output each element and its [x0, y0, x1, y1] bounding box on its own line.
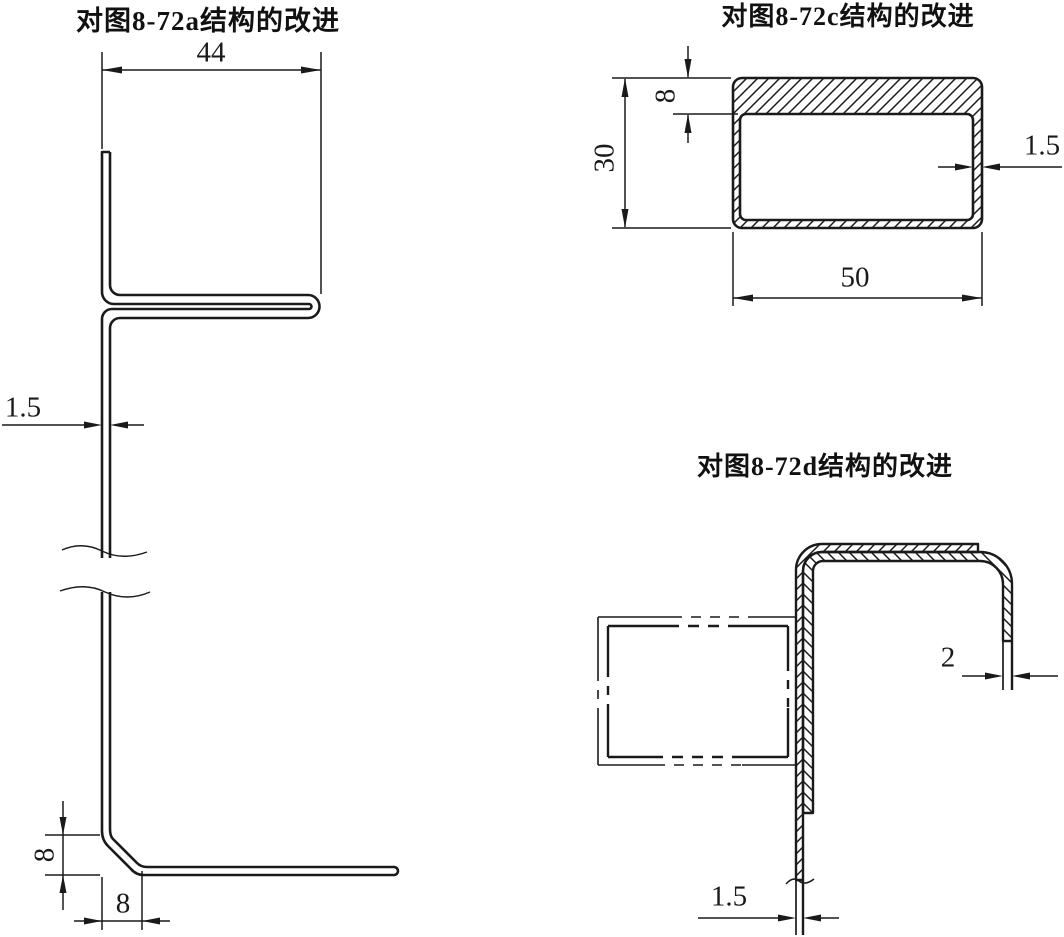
dim-44: [102, 52, 321, 294]
break-line: [60, 587, 150, 597]
arrowhead: [685, 59, 692, 78]
arrowhead: [803, 915, 821, 922]
arrowhead: [778, 915, 796, 922]
dim-label-a-8-horizontal: 8: [116, 890, 131, 919]
break-line: [62, 546, 147, 557]
figure-c-section: [733, 78, 982, 228]
arrowhead: [955, 164, 973, 171]
arrowhead: [685, 114, 692, 133]
arrowhead: [110, 422, 128, 429]
figure-d-title: 对图8-72d结构的改进: [697, 446, 953, 483]
dim-label-a-8-vertical: 8: [31, 848, 60, 863]
dim-label-c-1-5: 1.5: [1024, 132, 1060, 161]
phantom-tube-inner: [608, 626, 788, 757]
tube-section-ring: [733, 78, 982, 228]
arrowhead: [985, 673, 1003, 680]
sheet-outline-lower: [102, 592, 398, 875]
phantom-tube-outer: [598, 617, 796, 765]
figure-a-dimensions: [2, 52, 321, 930]
sheet-2-section: [803, 552, 1012, 813]
dim-label-c-30: 30: [591, 144, 620, 173]
dim-label-c-8: 8: [652, 89, 681, 104]
figure-d-dimensions: [698, 673, 1058, 922]
arrowhead: [733, 295, 753, 302]
arrowhead: [60, 875, 67, 893]
dim-1-5-bottom: [698, 915, 839, 922]
sheet-1-5-section: [796, 544, 978, 880]
figure-a-profile: [60, 152, 398, 875]
figure-a-title: 对图8-72a结构的改进: [76, 0, 340, 38]
figure-d-joint: [598, 544, 1012, 935]
arrowhead: [142, 918, 160, 925]
arrowhead: [84, 422, 102, 429]
dim-2: [962, 673, 1058, 680]
arrowhead: [622, 209, 629, 228]
phantom-tube: [598, 617, 796, 765]
dim-1-5-wall: [938, 164, 1062, 171]
dim-label-c-50: 50: [841, 264, 870, 293]
arrowhead: [622, 78, 629, 97]
dim-label-a-1-5: 1.5: [5, 394, 41, 423]
sheet-outline-inner-upper: [110, 152, 320, 558]
dim-label-44: 44: [197, 39, 226, 68]
dim-label-d-2: 2: [941, 644, 956, 673]
arrowhead: [1012, 673, 1030, 680]
technical-drawing-page: 对图8-72a结构的改进 对图8-72c结构的改进 对图8-72d结构的改进 4…: [0, 0, 1064, 937]
arrowhead: [102, 67, 122, 74]
figure-c-title: 对图8-72c结构的改进: [721, 0, 974, 33]
dim-8-top-wall: [673, 46, 738, 143]
sheet-outline-outer-upper: [102, 152, 312, 558]
arrowhead: [84, 918, 102, 925]
arrowhead: [60, 817, 67, 835]
arrowhead: [982, 164, 1000, 171]
arrowhead: [301, 67, 321, 74]
arrowhead: [962, 295, 982, 302]
sheet-extensions: [786, 641, 1012, 935]
dim-label-d-1-5: 1.5: [711, 883, 747, 912]
